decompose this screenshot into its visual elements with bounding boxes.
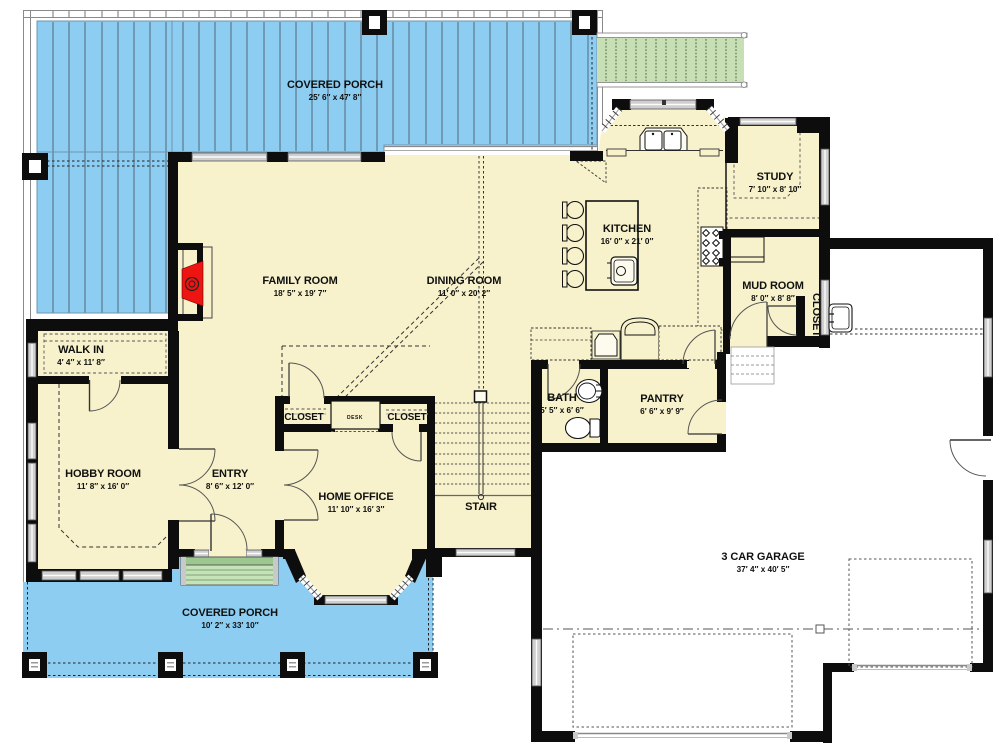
svg-text:STUDY: STUDY	[757, 171, 795, 183]
svg-text:MUD ROOM: MUD ROOM	[742, 280, 804, 292]
svg-text:8′ 0″ x 8′ 8″: 8′ 0″ x 8′ 8″	[751, 294, 795, 303]
svg-text:CLOSET: CLOSET	[387, 412, 426, 423]
svg-text:DINING ROOM: DINING ROOM	[427, 275, 502, 287]
svg-text:BATH: BATH	[547, 392, 576, 404]
svg-text:WALK IN: WALK IN	[58, 344, 104, 356]
svg-text:37′ 4″ x 40′ 5″: 37′ 4″ x 40′ 5″	[737, 565, 790, 574]
svg-text:STAIR: STAIR	[465, 501, 497, 513]
svg-text:4′ 4″ x 11′ 8″: 4′ 4″ x 11′ 8″	[57, 358, 105, 367]
svg-text:10′ 2″ x 33′ 10″: 10′ 2″ x 33′ 10″	[201, 621, 258, 630]
svg-text:6′ 6″ x 9′ 9″: 6′ 6″ x 9′ 9″	[640, 407, 684, 416]
svg-text:11′ 0″ x 20′ 2″: 11′ 0″ x 20′ 2″	[438, 289, 490, 298]
svg-text:DESK: DESK	[347, 415, 363, 421]
svg-text:5′ 5″ x 6′ 6″: 5′ 5″ x 6′ 6″	[540, 406, 584, 415]
svg-text:8′ 6″ x 12′ 0″: 8′ 6″ x 12′ 0″	[206, 482, 254, 491]
svg-text:18′ 5″ x 19′ 7″: 18′ 5″ x 19′ 7″	[274, 289, 327, 298]
svg-text:CLOSET: CLOSET	[810, 293, 822, 337]
svg-text:ENTRY: ENTRY	[212, 468, 249, 480]
svg-text:3 CAR GARAGE: 3 CAR GARAGE	[721, 551, 804, 563]
svg-text:COVERED PORCH: COVERED PORCH	[182, 607, 278, 619]
svg-text:COVERED PORCH: COVERED PORCH	[287, 79, 383, 91]
svg-text:PANTRY: PANTRY	[640, 393, 684, 405]
svg-text:16′ 0″ x 21′ 0″: 16′ 0″ x 21′ 0″	[601, 237, 654, 246]
svg-text:FAMILY ROOM: FAMILY ROOM	[262, 275, 337, 287]
svg-text:25′ 6″ x 47′ 8″: 25′ 6″ x 47′ 8″	[309, 93, 362, 102]
svg-text:HOME OFFICE: HOME OFFICE	[318, 491, 393, 503]
svg-text:11′ 8″ x 16′ 0″: 11′ 8″ x 16′ 0″	[77, 482, 129, 491]
svg-text:KITCHEN: KITCHEN	[603, 223, 651, 235]
svg-text:11′ 10″ x 16′ 3″: 11′ 10″ x 16′ 3″	[328, 505, 385, 514]
svg-text:7′ 10″ x 8′ 10″: 7′ 10″ x 8′ 10″	[749, 185, 802, 194]
svg-text:CLOSET: CLOSET	[284, 412, 323, 423]
svg-text:HOBBY ROOM: HOBBY ROOM	[65, 468, 141, 480]
